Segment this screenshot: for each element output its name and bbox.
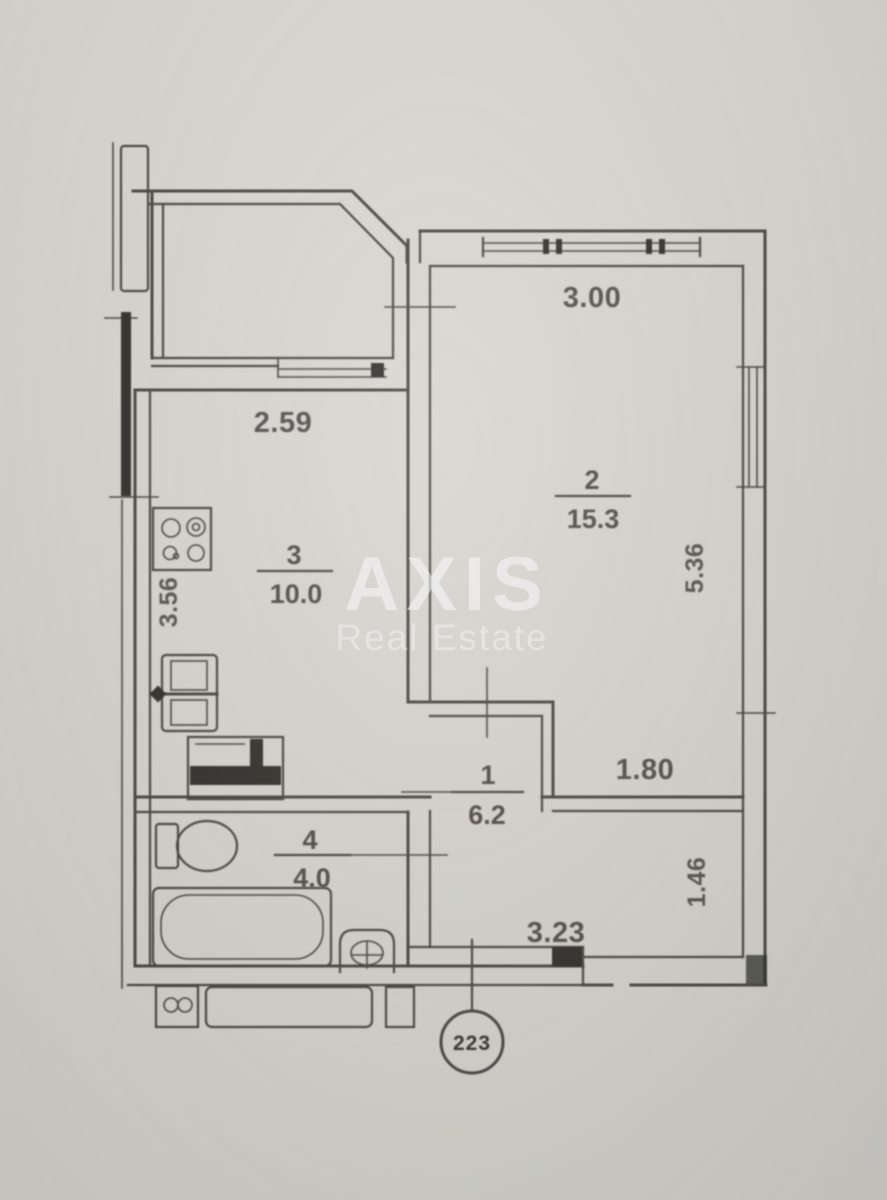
hallway-living-walls xyxy=(408,702,743,811)
room-area-hallway: 6.2 xyxy=(468,800,506,830)
dimension-kitchen-width: 2.59 xyxy=(254,407,312,439)
stove-icon xyxy=(153,508,211,570)
watermark-brand-text: AXIS xyxy=(344,542,549,627)
vent-icon xyxy=(156,986,198,1027)
room-area-kitchen: 10.0 xyxy=(270,579,323,609)
room-area-living: 15.3 xyxy=(567,504,620,534)
room-number-bathroom: 4 xyxy=(302,825,317,855)
watermark: AXIS Real Estate xyxy=(335,542,549,658)
right-exterior-wall xyxy=(737,231,775,985)
bathtub-icon xyxy=(153,888,331,966)
threshold-box xyxy=(206,987,414,1027)
dimension-living-width: 3.00 xyxy=(563,282,621,314)
balcony-wall-window xyxy=(135,358,408,390)
washer-icon xyxy=(188,737,283,799)
floorplan-drawing: AXIS Real Estate 3.00 2.59 5.36 3.56 1.8… xyxy=(0,0,887,1200)
toilet-icon xyxy=(156,821,237,871)
dimension-living-lower-width: 1.80 xyxy=(616,754,674,786)
room-number-living: 2 xyxy=(584,465,599,495)
dimension-corridor-depth: 1.46 xyxy=(683,857,711,908)
living-top-wall-window xyxy=(420,231,765,266)
dimension-kitchen-depth: 3.56 xyxy=(155,577,183,628)
room-area-bathroom: 4.0 xyxy=(293,863,331,893)
unit-number-badge: 223 xyxy=(453,1032,491,1055)
room-number-hallway: 1 xyxy=(480,760,495,790)
floorplan-photo: AXIS Real Estate 3.00 2.59 5.36 3.56 1.8… xyxy=(0,0,887,1200)
dimension-living-depth: 5.36 xyxy=(681,543,709,594)
dimension-entry-width: 3.23 xyxy=(527,917,585,949)
balcony-outline xyxy=(133,191,407,358)
watermark-tagline-text: Real Estate xyxy=(335,617,548,658)
room-number-kitchen: 3 xyxy=(286,540,301,570)
fridge-icon xyxy=(150,655,217,731)
